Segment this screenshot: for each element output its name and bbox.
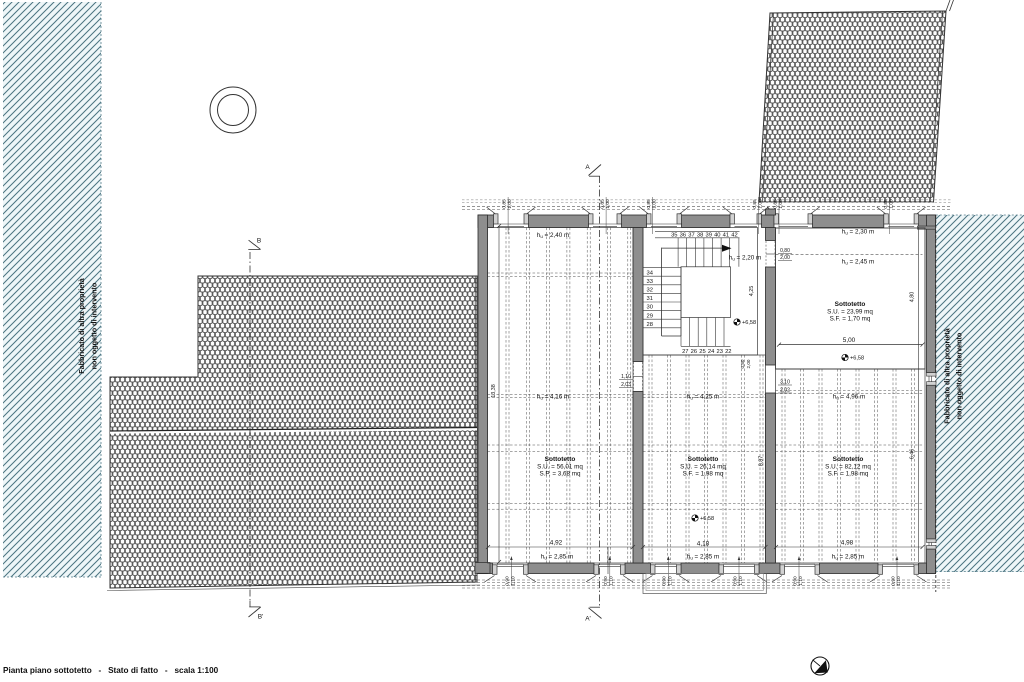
svg-text:2,03: 2,03 bbox=[621, 382, 631, 388]
svg-text:0,80: 0,80 bbox=[740, 359, 745, 368]
svg-text:23: 23 bbox=[716, 349, 722, 355]
svg-text:S.P. = 3,68 mq: S.P. = 3,68 mq bbox=[539, 471, 581, 478]
svg-text:1,00: 1,00 bbox=[888, 199, 894, 209]
svg-text:4,98: 4,98 bbox=[841, 540, 854, 547]
svg-text:Sottotetto: Sottotetto bbox=[688, 456, 719, 463]
svg-text:A': A' bbox=[585, 616, 591, 623]
svg-text:5,00: 5,00 bbox=[843, 337, 856, 344]
svg-text:Pianta piano sottotetto -: Pianta piano sottotetto - Stato di fatto… bbox=[3, 666, 219, 675]
svg-text:+6,58: +6,58 bbox=[700, 516, 714, 522]
svg-text:6,46: 6,46 bbox=[910, 449, 916, 460]
svg-text:hu = 2,30 m: hu = 2,30 m bbox=[842, 229, 874, 236]
svg-text:Fabbricato di altra proprietà: Fabbricato di altra proprietà bbox=[77, 277, 86, 373]
svg-text:31: 31 bbox=[647, 296, 653, 302]
svg-text:2,00: 2,00 bbox=[780, 255, 790, 261]
svg-text:4,80: 4,80 bbox=[910, 292, 916, 303]
svg-text:1,00: 1,00 bbox=[778, 199, 784, 209]
svg-text:0,80: 0,80 bbox=[780, 248, 790, 254]
svg-text:S.F. = 1,98 mq: S.F. = 1,98 mq bbox=[828, 471, 869, 478]
svg-text:B: B bbox=[257, 238, 261, 245]
svg-text:S.U. = 56,01 mq: S.U. = 56,01 mq bbox=[537, 464, 583, 471]
svg-text:Sottotetto: Sottotetto bbox=[545, 456, 576, 463]
svg-text:hu = 2,85 m: hu = 2,85 m bbox=[541, 554, 573, 561]
svg-text:1,00: 1,00 bbox=[605, 199, 611, 209]
svg-text:22: 22 bbox=[725, 349, 731, 355]
svg-text:13,38: 13,38 bbox=[491, 384, 497, 398]
svg-text:hu = 4,96 m: hu = 4,96 m bbox=[833, 394, 865, 401]
svg-text:hu = 2,40 m: hu = 2,40 m bbox=[537, 232, 569, 239]
svg-text:4,25: 4,25 bbox=[749, 286, 755, 297]
svg-text:30: 30 bbox=[647, 305, 653, 311]
svg-text:0,85: 0,85 bbox=[501, 199, 507, 209]
svg-text:1,00: 1,00 bbox=[757, 199, 763, 209]
svg-text:0,85: 0,85 bbox=[772, 199, 778, 209]
svg-text:hu = 2,45 m: hu = 2,45 m bbox=[842, 259, 874, 266]
svg-text:hu = 4,16 m: hu = 4,16 m bbox=[537, 394, 569, 401]
svg-text:33: 33 bbox=[647, 279, 653, 285]
svg-text:27: 27 bbox=[682, 349, 688, 355]
svg-text:1,10: 1,10 bbox=[621, 374, 631, 380]
svg-text:A: A bbox=[585, 164, 590, 171]
svg-text:0,85: 0,85 bbox=[883, 199, 889, 209]
svg-text:hu = 2,20 m: hu = 2,20 m bbox=[729, 255, 761, 262]
svg-text:1,10: 1,10 bbox=[896, 576, 902, 586]
svg-text:B': B' bbox=[258, 614, 264, 621]
svg-text:+6,58: +6,58 bbox=[850, 356, 864, 362]
svg-text:2,02: 2,02 bbox=[780, 388, 790, 394]
svg-text:S.F. = 1,70 mq: S.F. = 1,70 mq bbox=[830, 316, 871, 323]
svg-text:4,92: 4,92 bbox=[550, 540, 563, 547]
svg-text:non oggetto di intervento: non oggetto di intervento bbox=[955, 332, 964, 419]
svg-text:24: 24 bbox=[708, 349, 715, 355]
svg-text:1,10: 1,10 bbox=[667, 576, 673, 586]
svg-text:hu = 2,85 m: hu = 2,85 m bbox=[832, 554, 864, 561]
svg-text:hu = 4,25 m: hu = 4,25 m bbox=[687, 394, 719, 401]
svg-text:1,10: 1,10 bbox=[738, 576, 744, 586]
svg-text:0,90: 0,90 bbox=[662, 576, 668, 586]
svg-text:S.F. = 1,98 mq: S.F. = 1,98 mq bbox=[683, 471, 724, 478]
svg-text:8,87: 8,87 bbox=[759, 456, 765, 467]
svg-text:0,90: 0,90 bbox=[890, 576, 896, 586]
svg-text:0,90: 0,90 bbox=[792, 576, 798, 586]
svg-text:Fabbricato di altra proprietà: Fabbricato di altra proprietà bbox=[943, 327, 952, 423]
svg-text:26: 26 bbox=[691, 349, 697, 355]
svg-text:3,10: 3,10 bbox=[780, 380, 790, 386]
svg-text:34: 34 bbox=[647, 270, 654, 276]
svg-text:1,10: 1,10 bbox=[510, 576, 516, 586]
svg-text:0,90: 0,90 bbox=[732, 576, 738, 586]
svg-text:S.U. = 26,14 mq: S.U. = 26,14 mq bbox=[680, 464, 726, 471]
svg-text:29: 29 bbox=[647, 313, 653, 319]
svg-text:2,00: 2,00 bbox=[746, 359, 751, 368]
svg-text:hu = 2,85 m: hu = 2,85 m bbox=[687, 554, 719, 561]
svg-text:32: 32 bbox=[647, 288, 653, 294]
svg-text:1,00: 1,00 bbox=[651, 199, 657, 209]
svg-text:28: 28 bbox=[647, 322, 653, 328]
svg-text:S.U. = 23,99 mq: S.U. = 23,99 mq bbox=[827, 309, 873, 316]
svg-text:4,18: 4,18 bbox=[697, 541, 710, 548]
svg-text:1,00: 1,00 bbox=[507, 199, 513, 209]
svg-text:non oggetto di intervento: non oggetto di intervento bbox=[90, 282, 99, 369]
svg-text:0,85: 0,85 bbox=[752, 199, 758, 209]
svg-text:1,10: 1,10 bbox=[798, 576, 804, 586]
svg-text:0,90: 0,90 bbox=[603, 576, 609, 586]
svg-text:0,85: 0,85 bbox=[646, 199, 652, 209]
svg-text:+6,58: +6,58 bbox=[742, 320, 756, 326]
svg-text:25: 25 bbox=[699, 349, 705, 355]
svg-text:Sottotetto: Sottotetto bbox=[833, 456, 864, 463]
svg-text:Sottotetto: Sottotetto bbox=[835, 301, 866, 308]
svg-text:S.U. = 82,12 mq: S.U. = 82,12 mq bbox=[825, 464, 871, 471]
svg-text:0,90: 0,90 bbox=[505, 576, 511, 586]
svg-text:1,10: 1,10 bbox=[609, 576, 615, 586]
svg-text:0,85: 0,85 bbox=[599, 199, 605, 209]
